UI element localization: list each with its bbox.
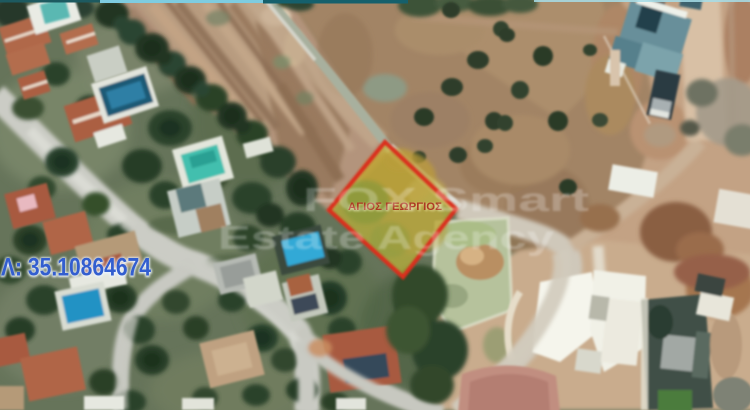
- svg-text:Λ: 35.10864674: Λ: 35.10864674: [1, 254, 151, 282]
- svg-text:FOX Smart: FOX Smart: [303, 181, 589, 218]
- svg-text:Estate Agency: Estate Agency: [218, 219, 555, 256]
